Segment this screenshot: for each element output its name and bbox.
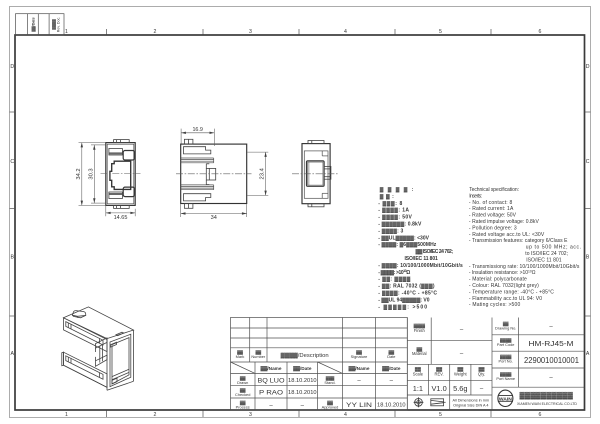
svg-text:- ▓▓▓▓: 50V: - ▓▓▓▓: 50V xyxy=(378,214,412,221)
svg-text:Approved: Approved xyxy=(322,404,339,409)
svg-text:16.9: 16.9 xyxy=(192,127,203,133)
svg-text:3: 3 xyxy=(249,412,252,418)
svg-text:5.6g: 5.6g xyxy=(453,384,467,393)
svg-text:5: 5 xyxy=(439,29,442,35)
svg-text:18.10.2010: 18.10.2010 xyxy=(377,403,406,409)
svg-text:Mark: Mark xyxy=(236,354,245,359)
svg-text:- Pollution degree: 3: - Pollution degree: 3 xyxy=(469,225,517,231)
svg-text:- Transmissiong rate: 10/100/1: - Transmissiong rate: 10/100/1000Mbit/10… xyxy=(469,264,580,270)
svg-text:- No. of contact: 8: - No. of contact: 8 xyxy=(469,200,513,206)
svg-text:- ▓▓▓▓: 1A: - ▓▓▓▓: 1A xyxy=(378,207,409,214)
svg-text:- ▓▓▓▓: 3: - ▓▓▓▓: 3 xyxy=(378,227,403,234)
svg-text:BQ LUO: BQ LUO xyxy=(258,377,285,384)
svg-text:B: B xyxy=(10,255,14,261)
svg-text:Drawn: Drawn xyxy=(237,380,248,385)
svg-text:3: 3 xyxy=(249,29,252,35)
svg-text:34: 34 xyxy=(211,215,217,221)
svg-text:14.65: 14.65 xyxy=(114,215,128,221)
svg-text:▓▓/Date: ▓▓/Date xyxy=(382,365,401,372)
svg-text:- ▓▓▓▓: -40°C - +85°C: - ▓▓▓▓: -40°C - +85°C xyxy=(378,290,437,297)
svg-text:Stand.: Stand. xyxy=(324,380,335,385)
svg-text:Qty.: Qty. xyxy=(478,372,485,377)
svg-text:34.2: 34.2 xyxy=(76,168,82,179)
svg-text:- ▓▓▓: 8: - ▓▓▓: 8 xyxy=(378,200,402,207)
svg-text:Port No.: Port No. xyxy=(499,358,513,363)
svg-text:Port Name: Port Name xyxy=(496,376,515,381)
svg-text:23.4: 23.4 xyxy=(260,167,266,179)
svg-text:▓▓▓▓/Description: ▓▓▓▓/Description xyxy=(281,352,329,359)
svg-text:All Dimensions in mm: All Dimensions in mm xyxy=(453,399,490,403)
svg-text:Material: Material xyxy=(412,351,427,356)
svg-text:4: 4 xyxy=(344,412,347,418)
svg-text:1: 1 xyxy=(65,29,68,35)
svg-text:Original Size DIN A 4: Original Size DIN A 4 xyxy=(453,404,488,408)
svg-text:WAIN: WAIN xyxy=(499,396,513,401)
svg-text:6: 6 xyxy=(539,412,542,418)
svg-text:- Mating cycles: >500: - Mating cycles: >500 xyxy=(469,302,521,308)
svg-text:D: D xyxy=(586,64,590,70)
svg-text:1: 1 xyxy=(65,412,68,418)
svg-text:- Colour: RAL 7032(light grey): - Colour: RAL 7032(light grey) xyxy=(469,283,539,289)
svg-text:▓▓ ISO/IEC 24 702;: ▓▓ ISO/IEC 24 702; xyxy=(416,248,454,255)
svg-text:C: C xyxy=(586,159,590,165)
svg-text:Part Code: Part Code xyxy=(497,342,515,347)
svg-text:- ▓▓: ▓▓▓▓: - ▓▓: ▓▓▓▓ xyxy=(378,276,410,283)
svg-text:Technical specification:: Technical specification: xyxy=(469,187,519,193)
svg-text:- Rated current: 1A: - Rated current: 1A xyxy=(469,206,514,212)
svg-text:- ▓▓▓▓: ▓6▓▓▓500MHz: - ▓▓▓▓: ▓6▓▓▓500MHz xyxy=(378,241,437,248)
svg-text:XIAMEN WAIN ELECTRICAL CO.LTD: XIAMEN WAIN ELECTRICAL CO.LTD xyxy=(517,401,577,406)
svg-text:Date: Date xyxy=(387,354,395,359)
svg-text:A: A xyxy=(10,351,14,357)
svg-text:▓▓▓▓: ▓▓▓▓ xyxy=(51,19,56,30)
svg-text:Number: Number xyxy=(251,354,266,359)
svg-text:ISO/IEC 11 801: ISO/IEC 11 801 xyxy=(526,257,562,263)
svg-text:18.10.2010: 18.10.2010 xyxy=(288,378,317,384)
svg-text:P RAO: P RAO xyxy=(259,390,283,397)
svg-text:▓▓:: ▓▓: xyxy=(380,193,394,200)
svg-text:Signature: Signature xyxy=(351,354,368,359)
svg-text:- ▓▓▓▓▓▓: 0.8kV: - ▓▓▓▓▓▓: 0.8kV xyxy=(378,221,422,228)
svg-text:- ▓▓▓▓: 10/100/1000Mbit/10Gbit: - ▓▓▓▓: 10/100/1000Mbit/10Gbit/s xyxy=(378,262,463,269)
svg-text:18.10.2010: 18.10.2010 xyxy=(288,390,317,396)
svg-text:- ▓▓▓▓: >1010Ω: - ▓▓▓▓: >1010Ω xyxy=(378,269,410,276)
svg-text:- Flammability acc.to UL 94: V: - Flammability acc.to UL 94: V0 xyxy=(469,296,542,302)
svg-text:REV.: REV. xyxy=(435,372,444,377)
svg-text:Process: Process xyxy=(236,404,250,409)
svg-text:▓▓/Date: ▓▓/Date xyxy=(293,365,312,372)
svg-text:- ▓▓UL 94▓▓▓▓▓: V0: - ▓▓UL 94▓▓▓▓▓: V0 xyxy=(378,296,429,303)
svg-text:- Temperature range: -40°C - +: - Temperature range: -40°C - +85°C xyxy=(469,289,554,295)
svg-text:Weight: Weight xyxy=(454,372,468,377)
svg-text:4: 4 xyxy=(344,29,347,35)
svg-text:- Material: polycarbonate: - Material: polycarbonate xyxy=(469,277,527,283)
svg-text:Inserts:: Inserts: xyxy=(469,193,482,199)
svg-text:B: B xyxy=(586,255,590,261)
svg-text:- Insulation resistance: >1010: - Insulation resistance: >1010Ω xyxy=(469,270,536,277)
svg-text:A: A xyxy=(586,351,590,357)
svg-text:Rev. Doc.: Rev. Doc. xyxy=(57,17,61,33)
svg-text:YY LIN: YY LIN xyxy=(346,402,373,409)
svg-text:▓▓/Name: ▓▓/Name xyxy=(261,365,282,372)
svg-text:V1.0: V1.0 xyxy=(431,384,446,393)
svg-text:HM-RJ45-M: HM-RJ45-M xyxy=(529,341,574,348)
svg-text:Scale: Scale xyxy=(413,372,424,377)
svg-text:Checked: Checked xyxy=(235,392,250,397)
svg-text:ISO/IEC 11 801: ISO/IEC 11 801 xyxy=(405,256,439,262)
svg-text:6: 6 xyxy=(539,29,542,35)
svg-text:▓▓▓▓▓▓▓▓▓▓: ▓▓▓▓▓▓▓▓▓▓ xyxy=(520,392,574,400)
svg-text:D: D xyxy=(10,64,14,70)
svg-text:Finish: Finish xyxy=(414,328,426,333)
svg-text:C: C xyxy=(10,159,14,165)
svg-text:- ▓▓UL▓▓▓▓▓: <30V: - ▓▓UL▓▓▓▓▓: <30V xyxy=(378,234,429,241)
svg-text:to ISO/IEC 24 702;: to ISO/IEC 24 702; xyxy=(525,251,568,257)
svg-text:2: 2 xyxy=(154,412,157,418)
svg-text:5: 5 xyxy=(439,412,442,418)
svg-text:- Rated voltage: 50V: - Rated voltage: 50V xyxy=(469,213,517,219)
svg-text:30.3: 30.3 xyxy=(89,168,95,179)
svg-text:up to 500 MHz; acc.: up to 500 MHz; acc. xyxy=(526,245,581,251)
svg-text:2: 2 xyxy=(154,29,157,35)
svg-text:- Rated voltage acc.to UL: <30: - Rated voltage acc.to UL: <30V xyxy=(469,232,545,238)
svg-text:Drawing No.: Drawing No. xyxy=(495,326,516,331)
svg-text:1:1: 1:1 xyxy=(413,384,423,393)
svg-text:- ▓▓: RAL 7032 (▓▓▓): - ▓▓: RAL 7032 (▓▓▓) xyxy=(378,283,435,290)
svg-text:- ▓▓▓▓▓: >500: - ▓▓▓▓▓: >500 xyxy=(378,303,427,310)
svg-text:- Transmission features: categ: - Transmission features: category 6/Clas… xyxy=(469,238,568,244)
svg-text:2290010010001: 2290010010001 xyxy=(524,356,579,365)
svg-text:- Rated impulse voltage: 0.8kV: - Rated impulse voltage: 0.8kV xyxy=(469,219,540,225)
svg-text:▓▓/Name: ▓▓/Name xyxy=(349,365,370,372)
